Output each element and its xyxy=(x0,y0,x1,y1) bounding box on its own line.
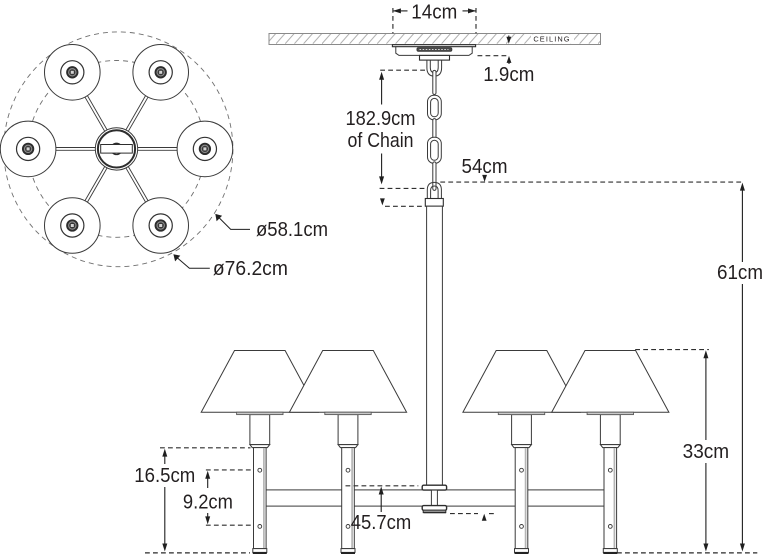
svg-text:ø76.2cm: ø76.2cm xyxy=(213,258,288,280)
svg-text:14cm: 14cm xyxy=(411,1,457,23)
svg-text:9.2cm: 9.2cm xyxy=(183,492,233,514)
svg-text:182.9cm: 182.9cm xyxy=(346,108,416,130)
svg-text:16.5cm: 16.5cm xyxy=(134,465,195,487)
svg-text:45.7cm: 45.7cm xyxy=(351,512,412,534)
svg-text:54cm: 54cm xyxy=(462,156,508,178)
svg-text:CEILING: CEILING xyxy=(533,35,570,44)
svg-text:of Chain: of Chain xyxy=(348,130,414,152)
svg-text:61cm: 61cm xyxy=(717,262,763,284)
svg-text:33cm: 33cm xyxy=(683,441,730,463)
svg-text:1.9cm: 1.9cm xyxy=(483,64,534,86)
svg-text:ø58.1cm: ø58.1cm xyxy=(256,219,328,241)
